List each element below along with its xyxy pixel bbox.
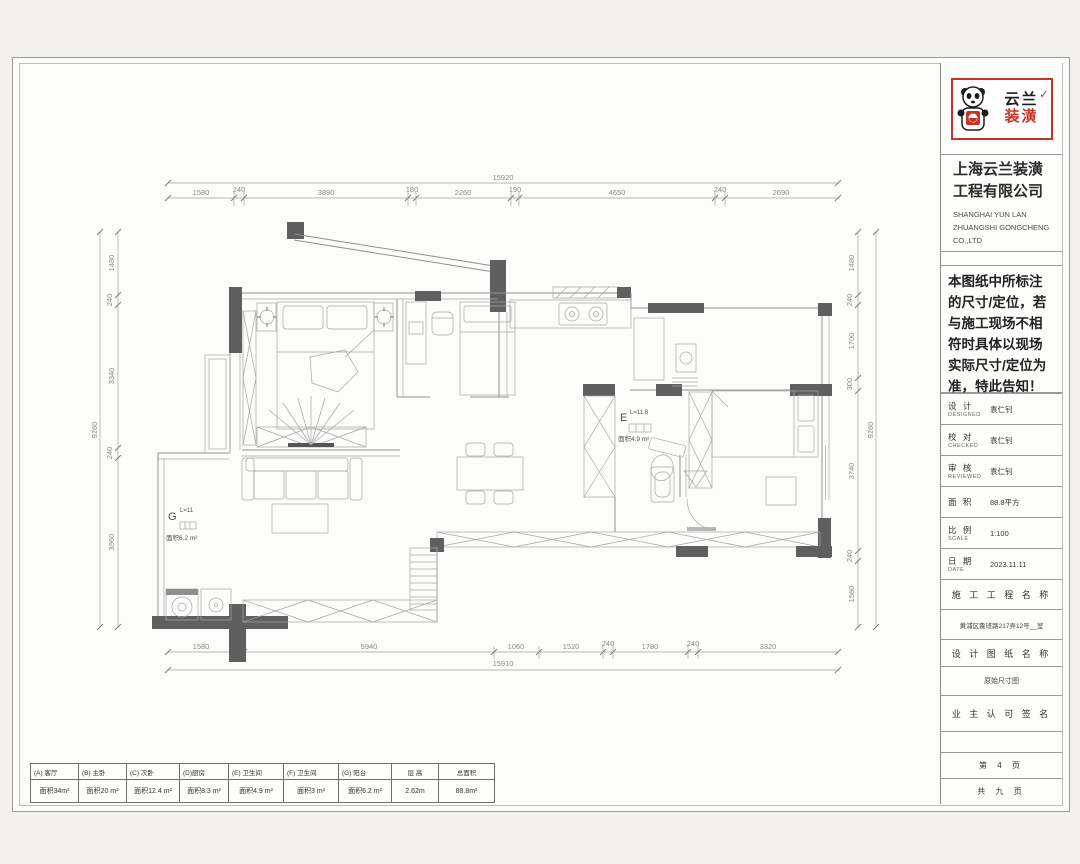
dim-label: 240 [687, 639, 700, 648]
dim-label: 240 [105, 447, 114, 460]
field-scale: 比 例SCALE 1:100 [941, 517, 1062, 548]
column-header: (G) 阳台 [339, 764, 391, 780]
signature-space [941, 731, 1062, 752]
company-name-en-line1: SHANGHAI YUN LAN [953, 209, 1062, 222]
dim-label: 5940 [361, 642, 378, 651]
drawing-name-value: 原始尺寸图 [941, 666, 1062, 695]
field-label: 面 积 [948, 496, 990, 508]
dim-label: 240 [845, 550, 854, 563]
company-name-en: SHANGHAI YUN LAN ZHUANGSHI GONGCHENG CO.… [941, 207, 1062, 251]
dim-label: 1560 [847, 586, 856, 603]
field-label: 比 例 [948, 524, 990, 536]
field-label: 日 期 [948, 555, 990, 567]
walls [152, 222, 832, 662]
field-label: 校 对 [948, 431, 990, 443]
table-column: (B) 主卧 面积20 m² [79, 764, 127, 802]
dim-label: 3320 [760, 642, 777, 651]
field-sublabel: CHECKED [948, 443, 990, 449]
table-column: 层 高 2.62m [392, 764, 439, 802]
logo-frame: ✓ 云兰 装潢 [951, 78, 1053, 140]
cell-value: 面积34m² [31, 780, 78, 802]
field-label: 设 计 [948, 400, 990, 412]
table-column: 总面积 88.8m² [439, 764, 494, 802]
field-sublabel: DATE [948, 567, 990, 573]
table-column: (F) 卫生间 面积3 m² [284, 764, 339, 802]
column-header: (B) 主卧 [79, 764, 126, 780]
cell-value: 面积3 m² [284, 780, 338, 802]
field-value: 1:100 [990, 529, 1062, 538]
dim-label: 1520 [563, 642, 580, 651]
column-header: (D)厨房 [180, 764, 228, 780]
column-header: (E) 卫生间 [229, 764, 283, 780]
company-name-cn-line2: 工程有限公司 [953, 181, 1062, 203]
owner-signature-label: 业 主 认 可 签 名 [941, 695, 1062, 731]
field-value: 袁仁钊 [990, 435, 1062, 446]
dim-label: 1480 [107, 255, 116, 272]
cell-value: 面积12.4 m² [127, 780, 179, 802]
company-name-en-line2: ZHUANGSHI GONGCHENG [953, 222, 1062, 235]
right-bedroom [689, 391, 818, 505]
cell-value: 88.8m² [439, 780, 494, 802]
cell-value: 面积8.3 m² [180, 780, 228, 802]
column-header: (F) 卫生间 [284, 764, 338, 780]
dimension-notice: 本图纸中所标注的尺寸/定位，若与施工现场不相符时具体以现场实际尺寸/定位为准，特… [941, 265, 1062, 393]
dim-label: 15920 [493, 173, 514, 182]
dim-label: 2260 [455, 188, 472, 197]
dim-label: 180 [406, 185, 419, 194]
project-name-value: 黄浦区鲁班路217弄12号__室 [941, 609, 1062, 639]
master-bedroom [243, 302, 394, 447]
bath-room-code: E [620, 412, 627, 424]
dim-label: 240 [845, 294, 854, 307]
company-name-cn-line1: 上海云兰装潢 [953, 159, 1062, 181]
table-column: (G) 阳台 面积6.2 m² [339, 764, 392, 802]
drawing-page: 15920 1580 240 3890 180 2260 190 4650 24… [0, 0, 1080, 864]
field-designed: 设 计DESIGNED 袁仁钊 [941, 393, 1062, 424]
company-name-en-line3: CO.,LTD [953, 235, 1062, 248]
dim-label: 2690 [773, 188, 790, 197]
column-header: 层 高 [392, 764, 438, 780]
field-date: 日 期DATE 2023.11.11 [941, 548, 1062, 579]
balcony-length-label: L=11 [180, 508, 194, 514]
brand-name-bottom: 装潢 [1004, 109, 1038, 126]
dim-label: 190 [509, 185, 522, 194]
table-column: (E) 卫生间 面积4.9 m² [229, 764, 284, 802]
dim-label: 1580 [193, 188, 210, 197]
title-block: ✓ 云兰 装潢 上海云兰装潢 工程有限公司 SHANGHAI YUN LAN Z… [940, 63, 1062, 804]
column-header: (C) 次卧 [127, 764, 179, 780]
floor-plan: 15920 1580 240 3890 180 2260 190 4650 24… [90, 165, 890, 680]
dim-label: 1780 [642, 642, 659, 651]
bath-area-label: 面积4.9 m² [618, 434, 650, 443]
column-header: 总面积 [439, 764, 494, 780]
balcony-area-label: 面积6.2 m² [166, 533, 198, 542]
field-sublabel: REVIEWED [948, 474, 990, 480]
divider [941, 251, 1062, 265]
balcony: G L=11 面积6.2 m² [166, 508, 231, 620]
company-name-cn: 上海云兰装潢 工程有限公司 [941, 155, 1062, 207]
table-column: (A) 客厅 面积34m² [31, 764, 79, 802]
dimension-chain-left: 1480 240 3340 240 3960 9260 [90, 229, 121, 630]
drawing-name-label: 设 计 图 纸 名 称 [941, 639, 1062, 666]
dim-label: 240 [714, 185, 727, 194]
dim-label: 15910 [493, 659, 514, 668]
page-total: 共 九 页 [941, 778, 1062, 804]
column-header: (A) 客厅 [31, 764, 78, 780]
field-value: 2023.11.11 [990, 560, 1062, 569]
dim-label: 4650 [609, 188, 626, 197]
field-value: 袁仁钊 [990, 466, 1062, 477]
dim-label: 3960 [107, 534, 116, 551]
bathroom: E L=11.8 面积4.9 m² [584, 396, 707, 502]
table-column: (C) 次卧 面积12.4 m² [127, 764, 180, 802]
table-column: (D)厨房 面积8.3 m² [180, 764, 229, 802]
dim-label: 3740 [847, 463, 856, 480]
cell-value: 2.62m [392, 780, 438, 802]
dim-label: 3340 [107, 368, 116, 385]
cell-value: 面积4.9 m² [229, 780, 283, 802]
brand-check-icon: ✓ [1039, 88, 1048, 101]
bath-length-label: L=11.8 [630, 410, 649, 416]
panda-mascot-icon [954, 83, 992, 135]
cell-value: 面积6.2 m² [339, 780, 391, 802]
dim-label: 3890 [318, 188, 335, 197]
cell-value: 面积20 m² [79, 780, 126, 802]
field-checked: 校 对CHECKED 袁仁钊 [941, 424, 1062, 455]
field-label: 审 核 [948, 462, 990, 474]
dim-label: 300 [845, 378, 854, 391]
brand-name-top: 云兰 [1004, 92, 1038, 109]
dim-label: 240 [233, 185, 246, 194]
dim-label: 1480 [847, 255, 856, 272]
dim-label: 240 [105, 294, 114, 307]
field-value: 袁仁钊 [990, 404, 1062, 415]
company-logo: ✓ 云兰 装潢 [941, 63, 1062, 155]
field-sublabel: SCALE [948, 536, 990, 542]
dim-label: 1580 [193, 642, 210, 651]
project-name-label: 施 工 工 程 名 称 [941, 579, 1062, 609]
dimension-chain-top: 15920 1580 240 3890 180 2260 190 4650 24… [165, 173, 841, 206]
dim-label: 1700 [847, 333, 856, 350]
dim-label: 1060 [508, 642, 525, 651]
field-area: 面 积 88.8平方 [941, 486, 1062, 517]
dimension-chain-right: 1480 240 1700 300 3740 240 1560 9260 [845, 229, 879, 630]
balcony-room-code: G [168, 511, 177, 523]
field-reviewed: 审 核REVIEWED 袁仁钊 [941, 455, 1062, 486]
room-area-table: (A) 客厅 面积34m² (B) 主卧 面积20 m² (C) 次卧 面积12… [30, 763, 495, 803]
field-value: 88.8平方 [990, 497, 1062, 508]
dim-label: 9260 [90, 422, 99, 439]
living-dining [242, 443, 523, 610]
brand-text: ✓ 云兰 装潢 [993, 92, 1051, 125]
field-sublabel: DESIGNED [948, 412, 990, 418]
dim-label: 9260 [866, 422, 875, 439]
dimension-chain-bottom: 1580 5940 1060 1520 240 1780 240 3320 15… [165, 639, 841, 673]
dim-label: 240 [602, 639, 615, 648]
page-number: 第 4 页 [941, 752, 1062, 778]
